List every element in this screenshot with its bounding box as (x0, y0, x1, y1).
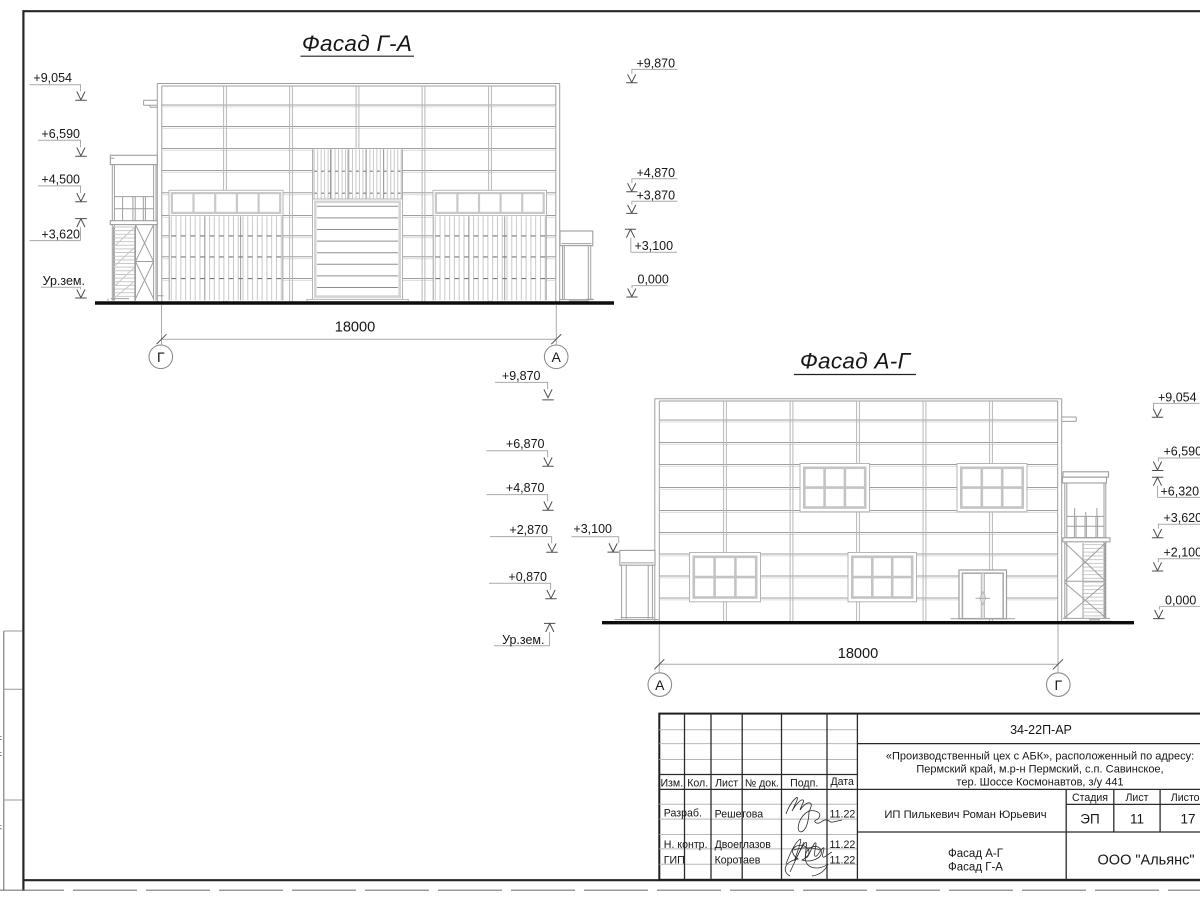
svg-text:№ док.: № док. (745, 777, 779, 789)
svg-text:«Производственный цех с АБК»,: «Производственный цех с АБК», расположен… (886, 751, 1194, 763)
svg-text:+4,500: +4,500 (41, 172, 80, 186)
svg-text:+0,870: +0,870 (508, 570, 547, 584)
svg-text:+3,620: +3,620 (1164, 511, 1200, 525)
svg-text:Инв. № подл.: Инв. № подл. (0, 820, 2, 861)
svg-text:+9,054: +9,054 (33, 71, 72, 85)
svg-text:+9,870: +9,870 (637, 57, 676, 71)
svg-text:Изм.: Изм. (660, 777, 683, 789)
svg-text:+6,590: +6,590 (41, 127, 80, 141)
svg-text:11.22: 11.22 (830, 855, 856, 867)
svg-text:18000: 18000 (838, 646, 879, 662)
svg-text:Пермский край, м.р-н Пермский,: Пермский край, м.р-н Пермский, с.п. Сави… (916, 764, 1163, 776)
svg-text:+3,100: +3,100 (635, 239, 674, 253)
svg-text:Ур.зем.: Ур.зем. (502, 633, 544, 647)
svg-text:+2,100: +2,100 (1164, 546, 1200, 560)
svg-text:17: 17 (1180, 812, 1195, 827)
svg-text:+3,100: +3,100 (573, 522, 612, 536)
svg-text:18000: 18000 (335, 320, 376, 336)
svg-text:Фасад А-Г: Фасад А-Г (800, 349, 912, 374)
svg-text:0,000: 0,000 (1165, 594, 1196, 608)
svg-text:+6,320: +6,320 (1161, 485, 1200, 499)
svg-text:34-22П-АР: 34-22П-АР (1010, 723, 1072, 737)
svg-text:+9,870: +9,870 (502, 369, 541, 383)
svg-text:+3,870: +3,870 (637, 188, 676, 202)
svg-text:ИП Пилькевич Роман Юрьевич: ИП Пилькевич Роман Юрьевич (884, 809, 1046, 821)
svg-text:11.22: 11.22 (830, 809, 856, 821)
svg-text:А: А (552, 349, 562, 365)
svg-text:А: А (655, 677, 665, 693)
svg-text:Кол.: Кол. (687, 777, 708, 789)
svg-text:Г: Г (157, 349, 165, 365)
svg-text:тер. Шоссе Космонавтов, з/у 44: тер. Шоссе Космонавтов, з/у 441 (956, 776, 1123, 788)
svg-text:Решетова: Решетова (715, 808, 764, 820)
svg-text:+4,870: +4,870 (506, 481, 545, 495)
svg-text:Лист: Лист (715, 777, 738, 789)
svg-text:+2,870: +2,870 (509, 523, 548, 537)
svg-text:Двоеглазов: Двоеглазов (715, 839, 772, 851)
svg-text:+6,590: +6,590 (1164, 445, 1200, 459)
svg-text:+9,054: +9,054 (1158, 390, 1197, 404)
svg-text:Г: Г (1055, 677, 1063, 693)
svg-text:Разраб.: Разраб. (664, 807, 702, 819)
svg-text:Лист: Лист (1125, 792, 1148, 804)
svg-text:0,000: 0,000 (638, 273, 669, 287)
svg-text:Н. контр.: Н. контр. (664, 839, 708, 851)
svg-text:+3,620: +3,620 (41, 228, 80, 242)
svg-text:Фасад А-Г: Фасад А-Г (948, 848, 1004, 860)
svg-text:Ур.зем.: Ур.зем. (43, 274, 85, 288)
svg-text:11: 11 (1130, 812, 1144, 827)
svg-text:Подп.: Подп. (790, 777, 818, 789)
svg-text:+6,870: +6,870 (506, 437, 545, 451)
svg-text:11.22: 11.22 (830, 839, 856, 851)
svg-text:Дата: Дата (830, 776, 854, 788)
svg-text:Подп. и дата: Подп. и дата (0, 725, 2, 764)
svg-text:Стадия: Стадия (1072, 792, 1108, 804)
svg-text:ЭП: ЭП (1080, 812, 1099, 827)
svg-text:ГИП: ГИП (664, 854, 685, 866)
svg-text:Фасад Г-А: Фасад Г-А (948, 861, 1003, 873)
svg-text:Листов: Листов (1171, 792, 1200, 804)
svg-text:+4,870: +4,870 (637, 166, 676, 180)
svg-text:Фасад Г-А: Фасад Г-А (302, 31, 412, 56)
svg-text:ООО "Альянс": ООО "Альянс" (1098, 852, 1195, 868)
svg-text:Коротаев: Коротаев (715, 854, 761, 866)
